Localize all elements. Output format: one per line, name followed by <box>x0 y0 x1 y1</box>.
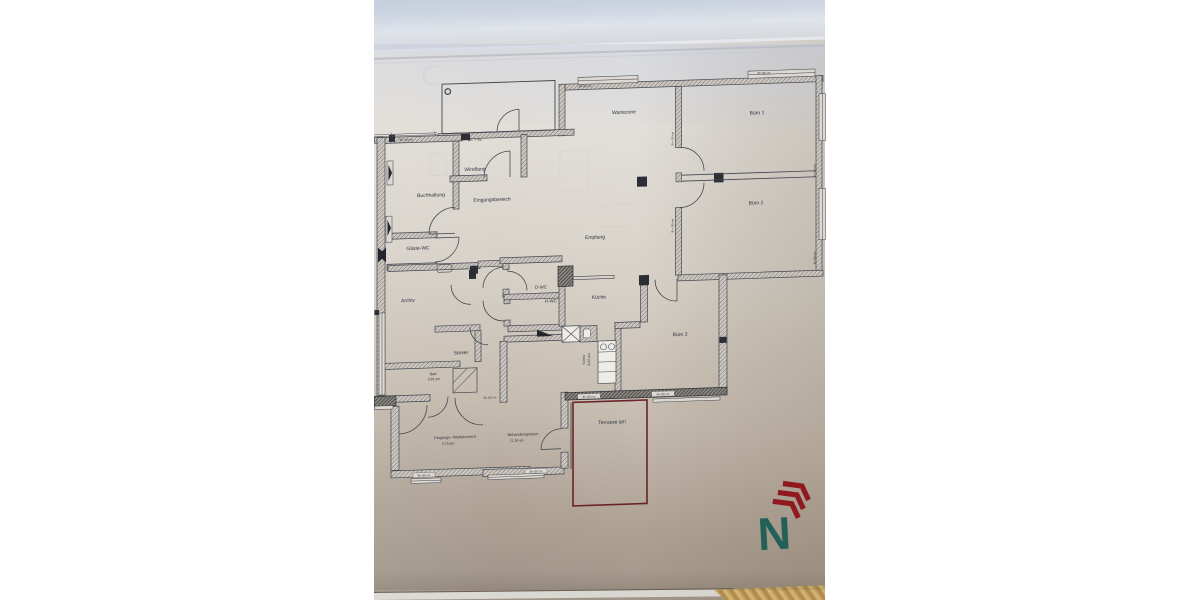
svg-text:H-WC: H-WC <box>545 298 557 303</box>
svg-text:Eingangs- /Wartebereich: Eingangs- /Wartebereich <box>434 435 476 440</box>
svg-text:Küche: Küche <box>582 355 586 365</box>
svg-text:Bad: Bad <box>430 372 437 376</box>
svg-text:B = 50 cm: B = 50 cm <box>671 131 675 145</box>
svg-text:Windfang: Windfang <box>464 166 485 173</box>
svg-text:B= 80 cm: B= 80 cm <box>657 392 670 396</box>
svg-text:8,62 qm: 8,62 qm <box>587 353 591 366</box>
svg-text:Archiv: Archiv <box>401 298 415 304</box>
svg-text:B= 80 cm: B= 80 cm <box>530 469 543 473</box>
svg-text:Empfang: Empfang <box>585 234 605 241</box>
svg-text:Küche: Küche <box>592 294 606 300</box>
svg-text:B= 80 cm: B= 80 cm <box>579 84 592 88</box>
svg-text:Buchhaltung: Buchhaltung <box>417 192 445 199</box>
svg-text:11,36 qm: 11,36 qm <box>510 438 524 442</box>
svg-text:B= 40 cm: B= 40 cm <box>400 138 413 142</box>
svg-text:3,81 qm: 3,81 qm <box>428 377 440 381</box>
svg-text:B= 80 cm: B= 80 cm <box>813 164 817 177</box>
svg-text:Server: Server <box>454 350 469 356</box>
svg-text:N: N <box>756 507 792 561</box>
svg-text:Terrasse qm: Terrasse qm <box>598 419 626 426</box>
svg-text:B = 50 cm: B = 50 cm <box>671 218 675 232</box>
svg-text:Büro 1: Büro 1 <box>750 110 765 116</box>
svg-text:B= 80 cm: B= 80 cm <box>758 71 771 75</box>
svg-text:Wartezone: Wartezone <box>612 109 636 116</box>
svg-text:B= 80 cm: B= 80 cm <box>583 395 596 399</box>
svg-text:B= 80 cm: B= 80 cm <box>418 473 431 477</box>
svg-text:D-WC: D-WC <box>535 284 547 289</box>
svg-text:B= 80 cm: B= 80 cm <box>813 251 817 264</box>
svg-text:Büro 2: Büro 2 <box>749 200 764 206</box>
svg-text:Gäste-WC: Gäste-WC <box>406 245 430 252</box>
svg-text:9,73 qm: 9,73 qm <box>442 441 454 445</box>
svg-text:B= 80 cm: B= 80 cm <box>484 395 497 399</box>
svg-text:Büro 3: Büro 3 <box>673 332 688 338</box>
svg-text:Eingangsbereich: Eingangsbereich <box>473 197 510 204</box>
svg-text:Behandlungsraum: Behandlungsraum <box>508 432 539 437</box>
svg-text:BK + KL: BK + KL <box>468 137 484 143</box>
